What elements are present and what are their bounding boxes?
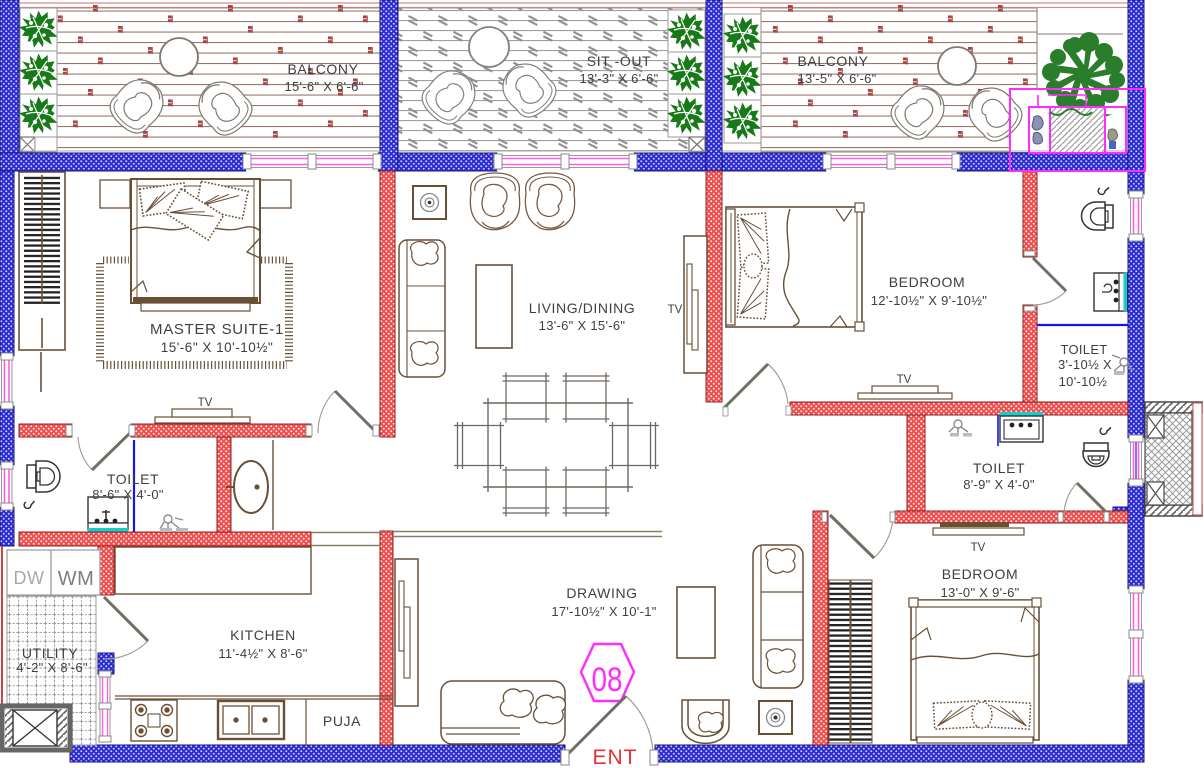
svg-text:DRAWING: DRAWING xyxy=(566,585,637,601)
svg-text:TV: TV xyxy=(668,304,683,316)
svg-text:11'-4½" X 8'-6": 11'-4½" X 8'-6" xyxy=(218,646,307,661)
svg-text:DW: DW xyxy=(14,568,45,588)
svg-text:TOILET: TOILET xyxy=(1060,342,1107,357)
svg-text:BEDROOM: BEDROOM xyxy=(942,566,1019,582)
svg-text:13'-5" X 6'-6": 13'-5" X 6'-6" xyxy=(797,71,876,86)
svg-text:13'-0" X 9'-6": 13'-0" X 9'-6" xyxy=(940,585,1019,600)
svg-text:MASTER SUITE-1: MASTER SUITE-1 xyxy=(150,321,284,338)
svg-text:BALCONY: BALCONY xyxy=(287,61,358,77)
svg-text:15'-6" X 10'-10½": 15'-6" X 10'-10½" xyxy=(161,340,274,355)
svg-text:08: 08 xyxy=(592,661,623,699)
svg-text:4'-2" X 8'-6": 4'-2" X 8'-6" xyxy=(16,660,88,675)
svg-text:3'-10½ X: 3'-10½ X xyxy=(1058,357,1112,372)
svg-text:TOILET: TOILET xyxy=(107,471,159,487)
svg-text:15'-6" X 6'-6": 15'-6" X 6'-6" xyxy=(284,79,363,94)
svg-text:13'-3" X 6'-6": 13'-3" X 6'-6" xyxy=(579,71,658,86)
svg-text:TV: TV xyxy=(897,374,912,386)
svg-text:BEDROOM: BEDROOM xyxy=(889,274,966,290)
svg-text:8'-9" X 4'-0": 8'-9" X 4'-0" xyxy=(963,477,1035,492)
svg-text:17'-10½" X 10'-1": 17'-10½" X 10'-1" xyxy=(551,604,656,619)
svg-text:UTILITY: UTILITY xyxy=(22,645,78,661)
svg-text:ENT: ENT xyxy=(593,746,638,768)
svg-text:LIVING/DINING: LIVING/DINING xyxy=(529,300,636,316)
svg-text:8'-6" X 4'-0": 8'-6" X 4'-0" xyxy=(92,487,164,502)
svg-text:BALCONY: BALCONY xyxy=(797,53,868,69)
svg-text:TV: TV xyxy=(971,542,986,554)
svg-text:13'-6" X 15'-6": 13'-6" X 15'-6" xyxy=(539,318,626,333)
svg-text:SIT -OUT: SIT -OUT xyxy=(587,53,651,69)
svg-text:KITCHEN: KITCHEN xyxy=(230,627,296,643)
svg-text:TV: TV xyxy=(198,397,213,409)
svg-text:TOILET: TOILET xyxy=(973,460,1025,476)
svg-text:PUJA: PUJA xyxy=(323,713,361,729)
svg-text:WM: WM xyxy=(58,568,95,590)
svg-text:12'-10½" X 9'-10½": 12'-10½" X 9'-10½" xyxy=(871,293,988,308)
svg-text:10'-10½: 10'-10½ xyxy=(1059,374,1108,389)
